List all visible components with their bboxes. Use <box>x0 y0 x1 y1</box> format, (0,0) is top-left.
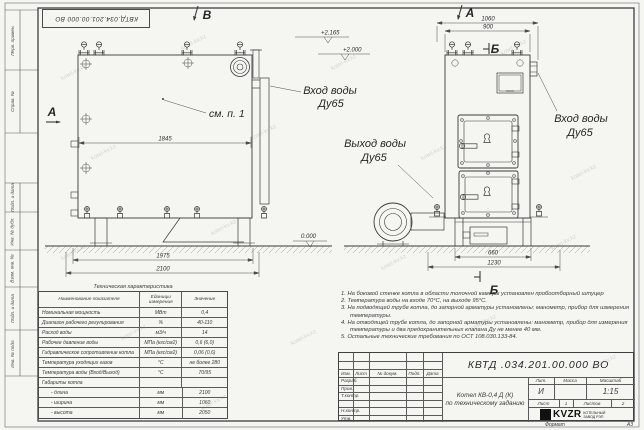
note-3: 3. На подводящей трубе котла, до запорно… <box>341 305 633 319</box>
dim-side-top: 900 <box>483 25 494 31</box>
titleblock-col-data: Дата <box>423 369 442 377</box>
titleblock-scale-header: Масштаб <box>586 377 635 384</box>
dim-side-full: 1230 <box>487 261 501 267</box>
frame-field-perv-primen: Перв. примен. <box>5 10 20 70</box>
company-logo-mark <box>540 409 551 420</box>
company-logo-text: KVZR <box>553 409 581 420</box>
titleblock-row-blank <box>339 400 369 408</box>
frame-field-sprav-no: Справ. № <box>5 70 20 133</box>
note-5: 5. Остальные технические требования по О… <box>341 334 633 341</box>
tech-table-row: Номинальная мощностьМВт0,4 <box>39 308 227 318</box>
outlet-label: Выход воды <box>344 138 406 150</box>
format-note: Формат А3 <box>545 422 633 428</box>
tech-characteristics-table: Техническая характеристика Наименование … <box>38 284 228 419</box>
tech-table-row: - длинамм2100 <box>39 388 227 398</box>
title-block: КВТД .034.201.00.000 ВО Изм. Лист № доку… <box>338 352 634 421</box>
elevation-mid-value: +2.000 <box>343 48 362 54</box>
frame-field-podp-data-1: Подп. и дата <box>5 183 20 212</box>
tech-table-row: Температура уходящих газов°Сне более 280 <box>39 358 227 368</box>
titleblock-scale-value: 1:15 <box>586 384 635 399</box>
titleblock-row-tkontr: Т.контр. <box>339 392 369 400</box>
outlet-dn: Ду65 <box>359 152 387 164</box>
titleblock-sheets-label: Листов <box>573 399 611 407</box>
tech-table-row: Расход водым3/ч14 <box>39 328 227 338</box>
drawing-sheet: 1845 1975 2100 1060 900 660 1230 В А А Б… <box>0 0 644 430</box>
inlet-side-dn: Ду65 <box>565 127 593 139</box>
titleblock-lit-value: И <box>528 384 554 399</box>
titleblock-sheet-value: 1 <box>559 399 573 407</box>
titleblock-col-list: Лист <box>353 369 369 377</box>
tech-table-row: Гидравлическое сопротивление котлаМПа (к… <box>39 348 227 358</box>
side-view-valves <box>434 42 541 217</box>
section-label-b-top: Б <box>491 42 500 56</box>
titleblock-product-name: Котел КВ-0,4 Д (К) по техническому задан… <box>442 377 528 422</box>
tech-table-row: - высотамм2050 <box>39 408 227 418</box>
view-label-a-side: А <box>465 6 475 20</box>
stamp-docnumber-text: КВТД.034.201.00.000 ВО <box>55 15 138 22</box>
titleblock-sheets-value: 2 <box>611 399 635 407</box>
leader-lines <box>162 73 557 198</box>
titleblock-row-prov: Пров. <box>339 385 369 393</box>
elevation-top-value: +2.165 <box>321 31 340 37</box>
frame-field-podp-data-2: Подп. и дата <box>5 287 20 330</box>
elevation-zero-value: 0.000 <box>301 234 317 240</box>
front-view <box>71 50 269 246</box>
titleblock-col-izm: Изм. <box>339 369 353 377</box>
frame-field-inv-dubl: Инв. № дубл. <box>5 212 20 250</box>
frame-field-vzam-inv: Взам. инв. № <box>5 250 20 287</box>
titleblock-col-docum: № докум. <box>369 369 406 377</box>
inlet-side-label: Вход воды <box>554 113 607 125</box>
tech-table-title: Техническая характеристика <box>38 284 228 290</box>
titleblock-mass-header: Масса <box>554 377 586 384</box>
inlet-front-dn: Ду65 <box>316 98 344 110</box>
dim-side-base: 660 <box>488 251 499 257</box>
titleblock-col-podp: Подп. <box>406 369 423 377</box>
tech-table-row: - ширинамм1060 <box>39 398 227 408</box>
titleblock-lit-header: Лит. <box>528 377 554 384</box>
titleblock-sheet-label: Лист <box>528 399 559 407</box>
tech-table-row: Рабочее давление водыМПа (кгс/см2)0,6 (6… <box>39 338 227 348</box>
titleblock-row-nkontr: Н.контр. <box>339 407 369 415</box>
frame-field-inv-podl: Инв. № подл. <box>5 330 20 376</box>
see-note-label: см. п. 1 <box>209 108 245 120</box>
tech-table-row: Диапазон рабочего регулирования%40-110 <box>39 318 227 328</box>
dim-front-legs: 1975 <box>156 254 170 260</box>
tech-table-row: Габариты котла <box>39 378 227 388</box>
side-view <box>374 55 548 246</box>
dim-side-total: 1060 <box>481 17 495 23</box>
inlet-front-label: Вход воды <box>303 85 356 97</box>
titleblock-doc-number: КВТД .034.201.00.000 ВО <box>442 353 635 377</box>
note-4: 4. На отводящей трубе котла, до запорной… <box>341 320 633 334</box>
dim-front-total: 2100 <box>155 267 170 273</box>
ground <box>45 246 590 253</box>
titleblock-company: KVZR КОТЕЛЬНЫЙ ЗАВОД РЭП <box>528 407 635 422</box>
view-label-b: В <box>203 8 212 22</box>
view-marks <box>46 5 489 282</box>
titleblock-row-utv: Утв. <box>339 415 369 423</box>
tech-table-header-row: Наименование показателя Единицы измерени… <box>39 292 227 308</box>
view-label-a-front: А <box>47 105 57 119</box>
stamp-rotated-docnumber: КВТД.034.201.00.000 ВО <box>42 9 150 28</box>
tech-table-row: Температура воды (Вход/Выход)°С70/95 <box>39 368 227 378</box>
technical-notes: 1. На боковой стенке котла в области топ… <box>341 291 633 341</box>
titleblock-row-razrab: Разраб. <box>339 377 369 385</box>
front-view-valves <box>79 42 267 218</box>
note-1: 1. На боковой стенке котла в области топ… <box>341 291 633 298</box>
dim-front-inner: 1845 <box>158 137 172 143</box>
